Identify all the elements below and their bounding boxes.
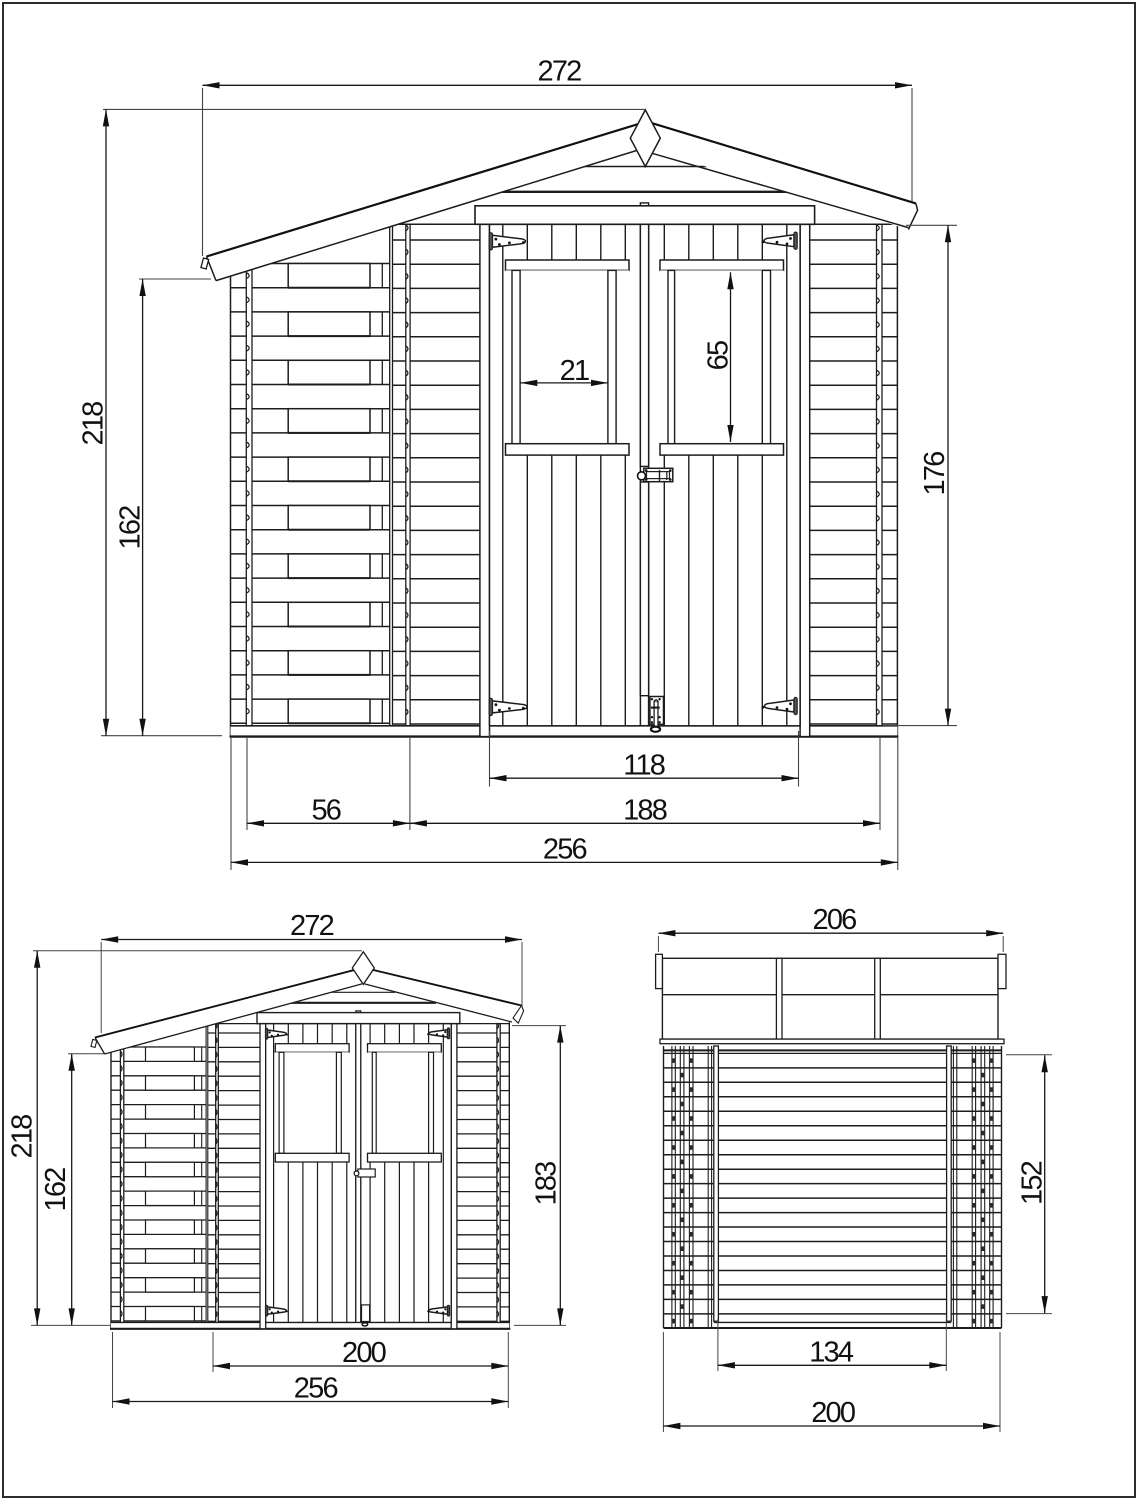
svg-text:218: 218 <box>7 1115 39 1159</box>
svg-text:162: 162 <box>115 506 147 550</box>
svg-text:152: 152 <box>1017 1161 1049 1205</box>
svg-text:272: 272 <box>290 910 334 942</box>
svg-text:65: 65 <box>703 341 735 370</box>
svg-text:183: 183 <box>531 1162 563 1206</box>
svg-text:118: 118 <box>623 749 665 781</box>
svg-text:176: 176 <box>919 452 951 496</box>
svg-text:256: 256 <box>543 834 587 866</box>
svg-text:272: 272 <box>538 56 582 88</box>
svg-text:162: 162 <box>40 1168 72 1212</box>
svg-text:256: 256 <box>294 1373 338 1405</box>
svg-text:188: 188 <box>623 795 667 827</box>
svg-text:218: 218 <box>78 402 110 446</box>
svg-text:56: 56 <box>311 795 340 827</box>
svg-text:134: 134 <box>809 1336 854 1368</box>
svg-text:200: 200 <box>811 1397 855 1429</box>
svg-text:200: 200 <box>342 1337 386 1369</box>
svg-text:206: 206 <box>813 904 857 936</box>
svg-text:21: 21 <box>560 355 589 387</box>
